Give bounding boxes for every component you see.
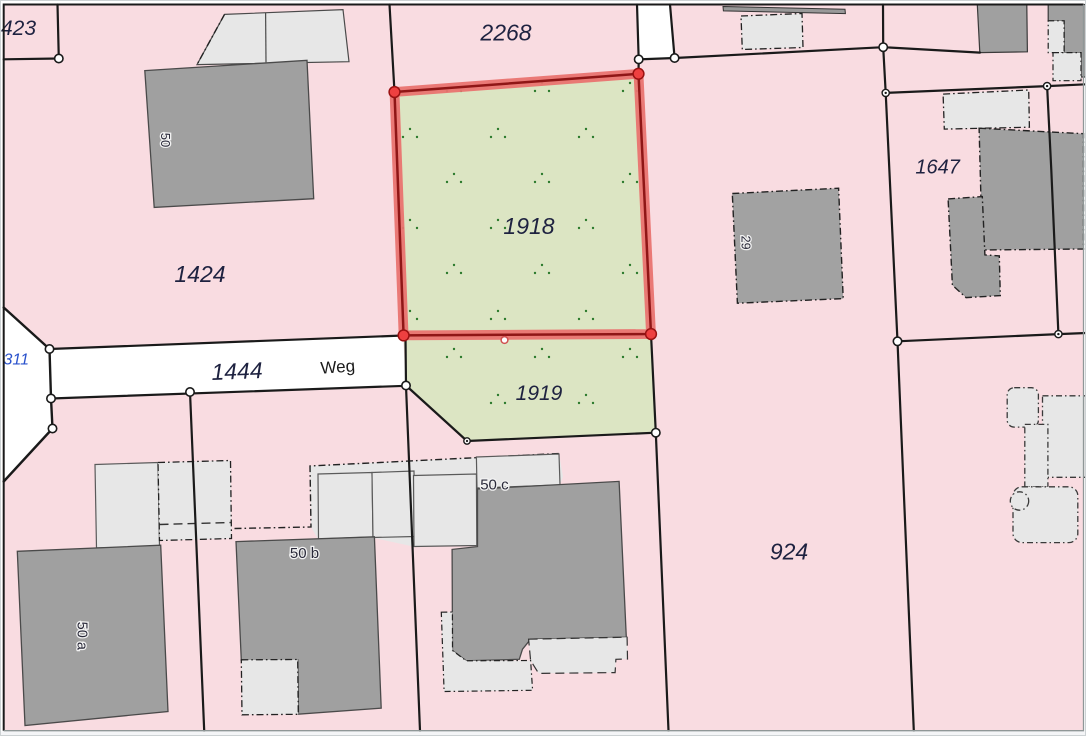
svg-text:423: 423: [1, 17, 36, 40]
svg-text:1647: 1647: [915, 157, 960, 179]
svg-text:2268: 2268: [479, 20, 531, 46]
svg-text:Weg: Weg: [320, 356, 356, 377]
svg-text:1444: 1444: [211, 357, 263, 385]
svg-text:50 a: 50 a: [73, 622, 89, 651]
svg-text:29: 29: [739, 236, 753, 250]
svg-text:924: 924: [770, 539, 808, 565]
svg-text:50: 50: [158, 133, 173, 147]
svg-text:1424: 1424: [174, 261, 225, 287]
svg-text:50 b: 50 b: [290, 545, 319, 562]
svg-text:1919: 1919: [516, 382, 563, 405]
svg-text:1918: 1918: [503, 213, 554, 239]
svg-text:50 c: 50 c: [480, 477, 509, 494]
svg-text:311: 311: [3, 352, 29, 369]
